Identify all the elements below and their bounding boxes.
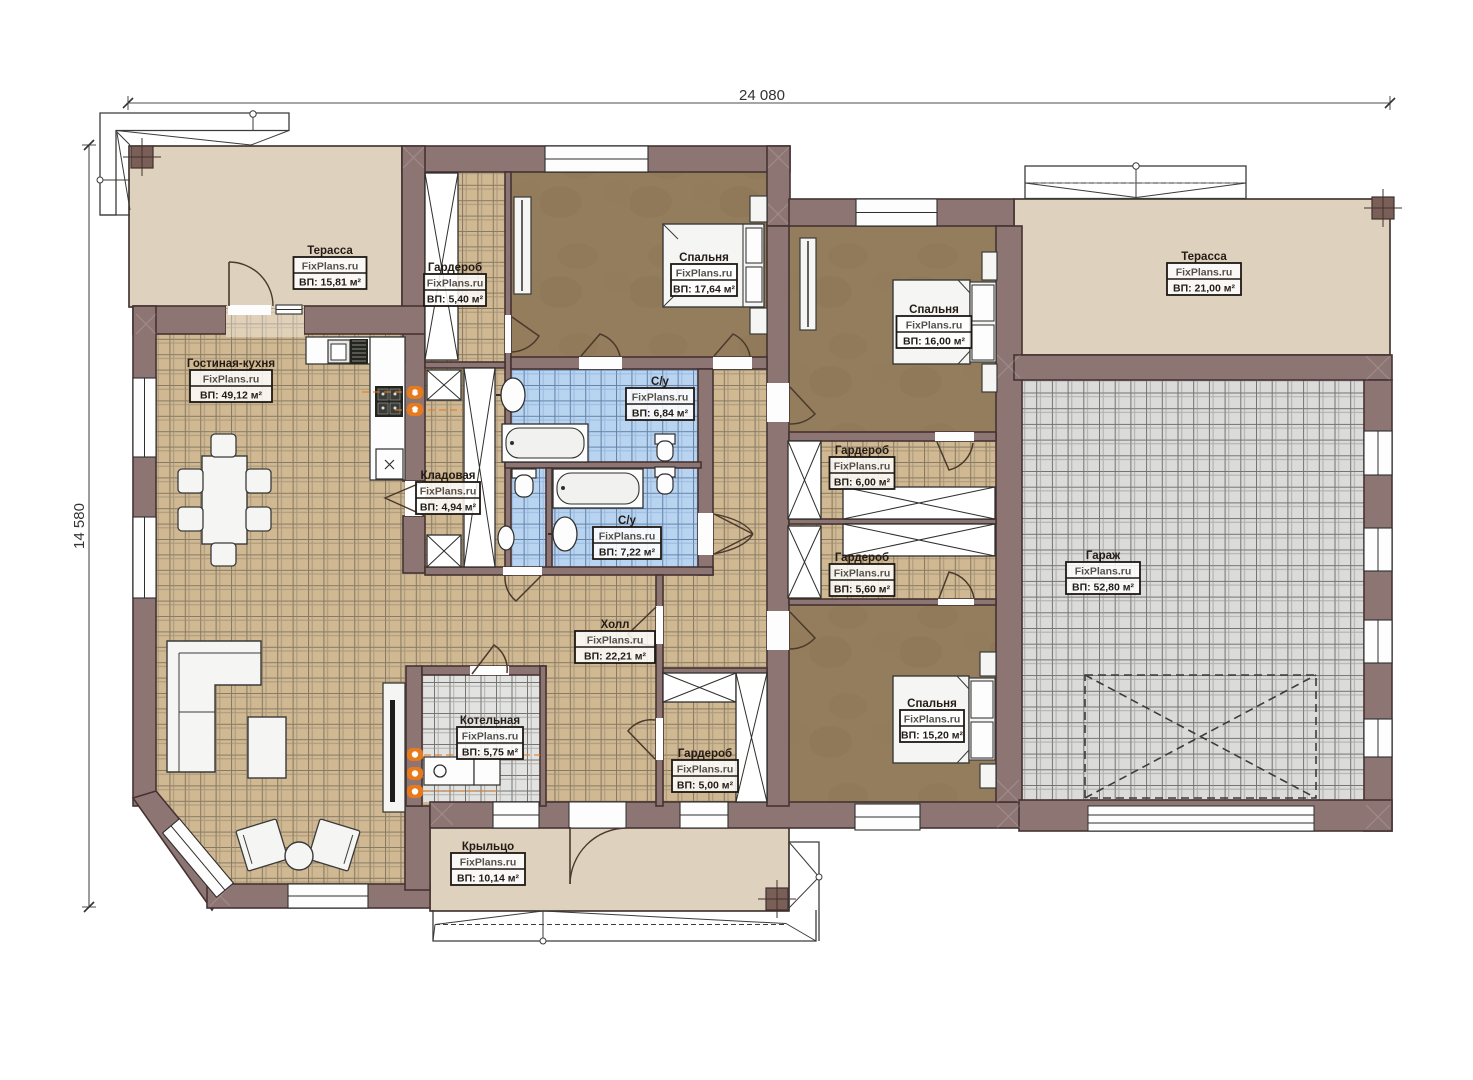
svg-text:FixPlans.ru: FixPlans.ru: [904, 714, 961, 726]
svg-text:FixPlans.ru: FixPlans.ru: [427, 278, 484, 290]
svg-text:ВП: 5,60 м²: ВП: 5,60 м²: [834, 584, 891, 596]
svg-text:ВП: 22,21 м²: ВП: 22,21 м²: [584, 651, 647, 663]
svg-text:24 080: 24 080: [739, 87, 785, 104]
svg-text:Гардероб: Гардероб: [835, 552, 889, 564]
svg-text:ВП: 17,64 м²: ВП: 17,64 м²: [673, 284, 736, 296]
svg-text:ВП: 15,81 м²: ВП: 15,81 м²: [299, 277, 362, 289]
svg-text:Кладовая: Кладовая: [420, 470, 475, 482]
svg-text:Терасса: Терасса: [1181, 251, 1227, 263]
svg-text:Гардероб: Гардероб: [835, 445, 889, 457]
svg-text:ВП: 7,22 м²: ВП: 7,22 м²: [599, 547, 656, 559]
svg-text:ВП: 6,84 м²: ВП: 6,84 м²: [632, 408, 689, 420]
svg-text:ВП: 49,12 м²: ВП: 49,12 м²: [200, 390, 263, 402]
svg-text:ВП: 21,00 м²: ВП: 21,00 м²: [1173, 283, 1236, 295]
svg-text:С/у: С/у: [618, 515, 637, 527]
svg-text:ВП: 5,40 м²: ВП: 5,40 м²: [427, 294, 484, 306]
svg-text:Крыльцо: Крыльцо: [462, 841, 514, 853]
svg-text:Котельная: Котельная: [460, 715, 520, 727]
svg-text:FixPlans.ru: FixPlans.ru: [599, 531, 656, 543]
svg-text:ВП: 5,00 м²: ВП: 5,00 м²: [677, 780, 734, 792]
svg-text:ВП: 52,80 м²: ВП: 52,80 м²: [1072, 582, 1135, 594]
svg-text:Гардероб: Гардероб: [678, 748, 732, 760]
svg-text:FixPlans.ru: FixPlans.ru: [906, 320, 963, 332]
svg-text:Спальня: Спальня: [909, 304, 959, 316]
svg-text:Холл: Холл: [601, 619, 630, 631]
svg-text:Гостиная-кухня: Гостиная-кухня: [187, 358, 275, 370]
svg-text:FixPlans.ru: FixPlans.ru: [834, 568, 891, 580]
svg-text:FixPlans.ru: FixPlans.ru: [632, 392, 689, 404]
svg-text:С/у: С/у: [651, 376, 670, 388]
svg-text:ВП: 5,75 м²: ВП: 5,75 м²: [462, 747, 519, 759]
svg-text:14 580: 14 580: [71, 503, 88, 549]
svg-text:FixPlans.ru: FixPlans.ru: [587, 635, 644, 647]
svg-text:FixPlans.ru: FixPlans.ru: [1176, 267, 1233, 279]
svg-text:Терасса: Терасса: [307, 245, 353, 257]
svg-text:FixPlans.ru: FixPlans.ru: [460, 857, 517, 869]
svg-text:ВП: 10,14 м²: ВП: 10,14 м²: [457, 873, 520, 885]
svg-text:Спальня: Спальня: [907, 698, 957, 710]
svg-text:ВП: 16,00 м²: ВП: 16,00 м²: [903, 336, 966, 348]
svg-text:FixPlans.ru: FixPlans.ru: [1075, 566, 1132, 578]
svg-text:FixPlans.ru: FixPlans.ru: [420, 486, 477, 498]
svg-text:Гардероб: Гардероб: [428, 262, 482, 274]
svg-text:Спальня: Спальня: [679, 252, 729, 264]
svg-text:FixPlans.ru: FixPlans.ru: [462, 731, 519, 743]
svg-text:FixPlans.ru: FixPlans.ru: [834, 461, 891, 473]
svg-text:ВП: 4,94 м²: ВП: 4,94 м²: [420, 502, 477, 514]
svg-text:FixPlans.ru: FixPlans.ru: [677, 764, 734, 776]
svg-text:FixPlans.ru: FixPlans.ru: [676, 268, 733, 280]
svg-text:FixPlans.ru: FixPlans.ru: [203, 374, 260, 386]
svg-text:ВП: 6,00 м²: ВП: 6,00 м²: [834, 477, 891, 489]
svg-text:FixPlans.ru: FixPlans.ru: [302, 261, 359, 273]
svg-text:Гараж: Гараж: [1086, 550, 1121, 562]
svg-text:ВП: 15,20 м²: ВП: 15,20 м²: [901, 730, 964, 742]
